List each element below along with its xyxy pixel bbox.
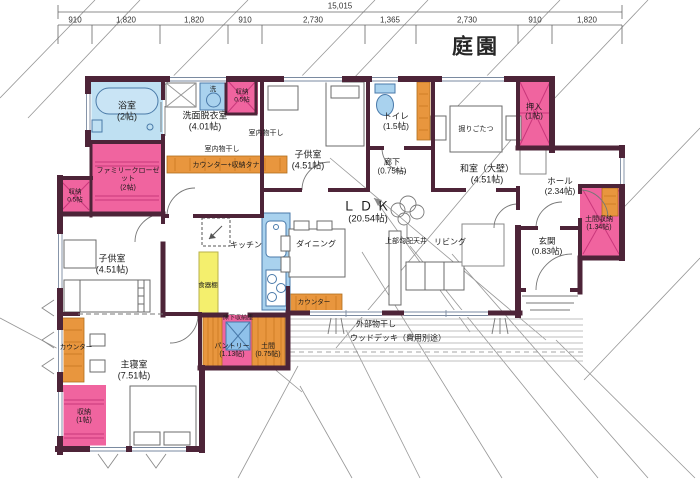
doma-storage-shelf <box>602 188 618 216</box>
washing-machine-icon <box>200 83 227 110</box>
storage-master-fill <box>62 385 106 449</box>
floor-plan: 15,015 910 1,820 1,820 910 2,730 1,365 2… <box>0 0 700 500</box>
pantry-wood-strip <box>203 315 222 368</box>
bedroom-counter <box>62 318 84 382</box>
entrance-steps <box>522 296 578 310</box>
toilet-tank <box>375 84 395 93</box>
kotatsu-table <box>450 106 502 152</box>
living-table <box>462 224 504 266</box>
kids-top-desk <box>268 86 298 110</box>
toilet-bowl-icon <box>377 95 394 116</box>
cupboard-icon <box>199 252 218 317</box>
washroom-counter <box>167 156 287 173</box>
toilet-cabinet <box>417 82 430 140</box>
kids-bottom-desk <box>64 240 96 268</box>
kids-bottom-bed <box>64 280 150 312</box>
bathtub-icon <box>96 88 158 114</box>
dimension-lines <box>58 5 622 44</box>
wood-deck <box>290 319 583 361</box>
dining-table <box>289 229 345 277</box>
family-closet-fill <box>91 142 163 214</box>
floor-plan-drawing <box>0 0 700 500</box>
sofa <box>406 262 464 290</box>
bedroom-chair <box>90 360 105 372</box>
shoe-cabinet <box>520 150 546 174</box>
bedroom-chair <box>90 334 105 346</box>
doma-floor <box>252 315 285 368</box>
tv-board <box>389 231 401 305</box>
